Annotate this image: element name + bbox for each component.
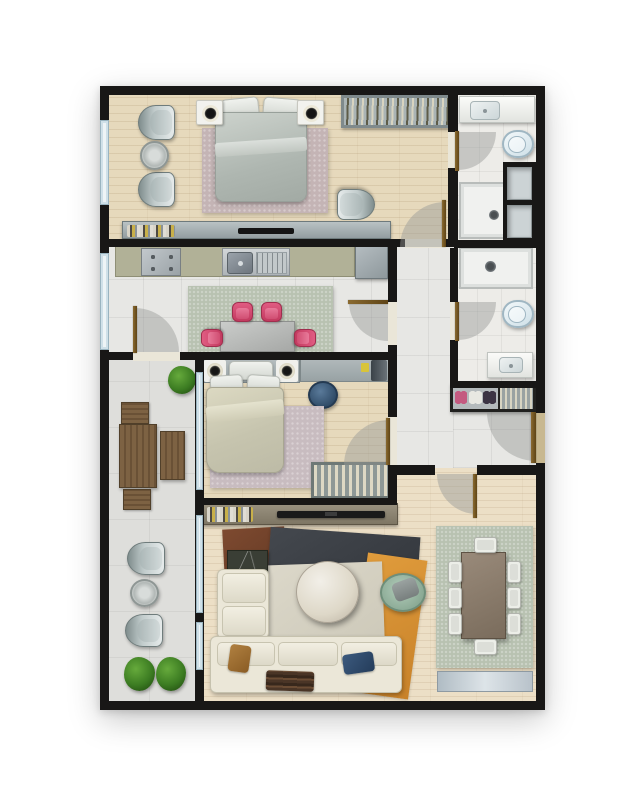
- shoes: [483, 390, 496, 405]
- shower: [459, 182, 509, 239]
- nightstand-right: [297, 100, 324, 125]
- master-bed: [215, 96, 307, 202]
- door-threshold: [536, 413, 545, 463]
- sink-basin: [499, 357, 523, 373]
- shaft-inset: [507, 167, 532, 200]
- window: [196, 515, 203, 613]
- balcony-bench: [160, 431, 185, 480]
- armchair: [138, 172, 175, 207]
- shoes: [469, 390, 482, 405]
- vanity: [459, 96, 535, 123]
- tv: [238, 228, 294, 234]
- dining-table: [461, 552, 506, 639]
- wall: [536, 86, 545, 413]
- hall-living-door-leaf: [473, 474, 477, 518]
- shoe-shelf: [453, 386, 498, 409]
- balcony: [103, 356, 198, 704]
- drainer: [256, 252, 287, 274]
- throw-pillow: [227, 644, 252, 674]
- wall: [448, 95, 458, 132]
- cushion: [222, 573, 266, 603]
- wall: [107, 239, 405, 247]
- chair: [507, 561, 521, 583]
- wall: [448, 168, 458, 240]
- wardrobe: [311, 462, 392, 499]
- wall: [397, 465, 435, 475]
- chair: [474, 537, 497, 553]
- dining-door-leaf: [348, 300, 388, 304]
- chair: [448, 587, 462, 609]
- cushion: [391, 576, 421, 602]
- wall: [100, 352, 133, 360]
- shaft-inset: [507, 205, 532, 238]
- dresser: [122, 221, 391, 239]
- chair: [294, 329, 316, 347]
- desk-book: [361, 363, 369, 372]
- decor-books: [127, 225, 175, 237]
- desk: [300, 357, 389, 382]
- wall: [388, 345, 397, 352]
- coffee-table: [296, 561, 359, 623]
- chair: [474, 639, 497, 655]
- tv-console: [200, 503, 398, 525]
- master-bedroom-door-leaf: [442, 200, 446, 247]
- bathroom1-door-leaf: [455, 131, 459, 171]
- decor-books: [207, 507, 253, 522]
- shoes: [455, 390, 467, 405]
- service-shaft: [503, 162, 536, 244]
- log-decor: [266, 670, 315, 692]
- door-threshold: [133, 352, 180, 361]
- cushion: [222, 606, 266, 636]
- wall: [195, 498, 397, 505]
- nightstand-left: [196, 100, 223, 125]
- toilet: [502, 130, 534, 158]
- shower: [459, 247, 533, 289]
- cushion: [278, 642, 338, 666]
- chair: [261, 302, 282, 322]
- chair: [507, 613, 521, 635]
- lamp: [202, 105, 219, 122]
- shower-head: [485, 261, 496, 272]
- wall: [454, 240, 536, 248]
- lamp: [303, 105, 320, 122]
- chair: [201, 329, 223, 347]
- window: [196, 622, 203, 670]
- wall: [100, 86, 545, 95]
- wall: [536, 463, 545, 710]
- sink: [227, 252, 253, 274]
- wall: [180, 352, 397, 360]
- throw-pillow: [342, 651, 375, 675]
- wall: [477, 465, 536, 475]
- sofa-chaise: [217, 569, 269, 639]
- vanity: [487, 352, 533, 378]
- chair: [507, 587, 521, 609]
- armchair: [127, 542, 165, 575]
- wall: [450, 340, 458, 381]
- balcony-bench: [123, 489, 151, 510]
- chair: [232, 302, 253, 322]
- sink-unit: [222, 248, 290, 276]
- armchair: [125, 614, 163, 647]
- wall: [388, 247, 397, 302]
- wall: [450, 381, 536, 388]
- breakfast-table: [220, 321, 295, 352]
- round-lounge-chair: [380, 573, 426, 612]
- door-threshold: [388, 302, 397, 345]
- cooktop: [141, 248, 181, 276]
- wardrobe-hanger-rack: [341, 95, 453, 128]
- window: [100, 253, 109, 350]
- wall: [388, 464, 397, 500]
- floor-plan: [0, 0, 639, 800]
- bedroom2-bed: [206, 373, 284, 473]
- bedroom2-door-leaf: [386, 418, 390, 465]
- chair: [448, 561, 462, 583]
- window: [196, 372, 203, 490]
- side-table: [140, 141, 169, 170]
- desk-chair: [308, 381, 338, 409]
- tv: [277, 511, 385, 518]
- corridor: [390, 244, 455, 470]
- bathroom2-door-leaf: [455, 302, 459, 341]
- side-table: [130, 579, 159, 607]
- wall: [388, 360, 397, 417]
- wall: [450, 248, 458, 302]
- sideboard: [437, 671, 533, 692]
- shower-head: [489, 210, 499, 220]
- armchair: [138, 105, 175, 140]
- balcony-bench: [121, 402, 149, 424]
- duvet: [215, 112, 307, 202]
- balcony-door-leaf: [133, 306, 137, 353]
- chair: [448, 613, 462, 635]
- wall: [100, 701, 545, 710]
- desk-monitor: [371, 360, 387, 381]
- hanger-slats: [500, 386, 533, 409]
- kitchen-counter: [115, 245, 355, 277]
- balcony-table: [119, 424, 157, 488]
- armchair: [337, 189, 375, 220]
- fridge: [355, 243, 388, 279]
- sink-basin: [470, 101, 500, 120]
- entry-door-leaf: [531, 412, 536, 463]
- toilet: [502, 300, 534, 328]
- window: [100, 120, 109, 205]
